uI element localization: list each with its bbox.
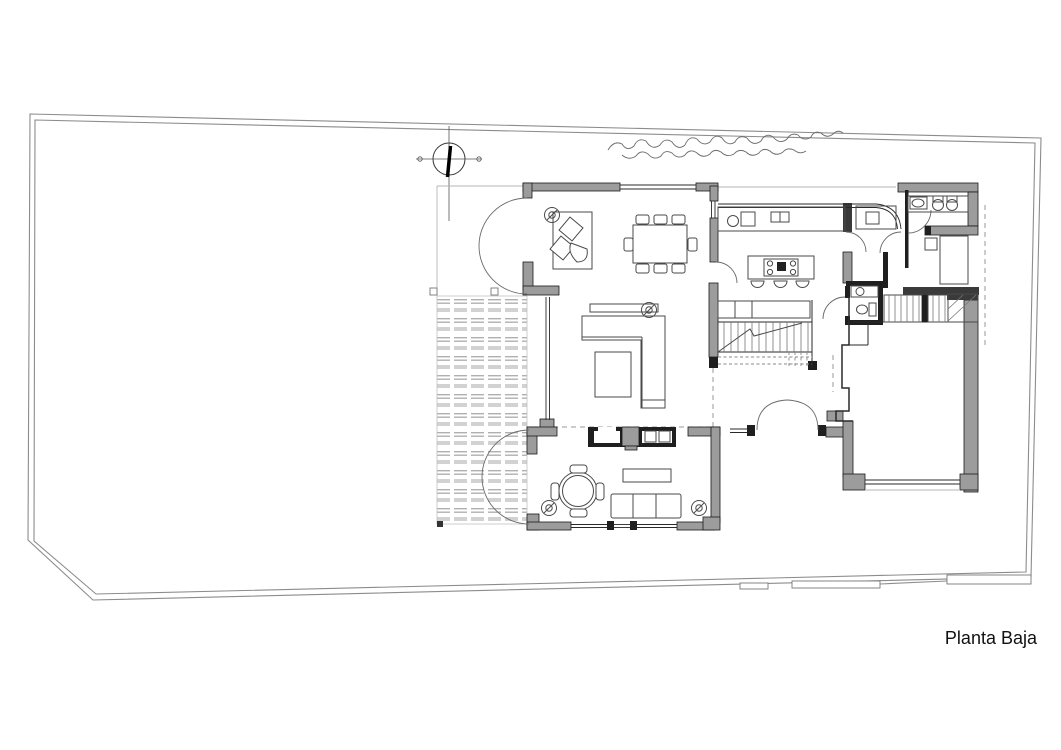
deck-striped-floor <box>437 296 527 524</box>
dining-table <box>633 225 687 263</box>
round-table <box>559 472 597 510</box>
floor-plan-drawing: Planta Baja <box>0 0 1061 750</box>
bar-stools <box>751 281 809 288</box>
floor-plan-page: Planta Baja <box>0 0 1061 750</box>
pergola-post <box>430 288 437 295</box>
pergola-post <box>437 521 443 527</box>
study-sofa <box>611 494 681 518</box>
pergola-post <box>491 288 498 295</box>
fireplace <box>588 427 676 450</box>
deck-terrace <box>430 288 527 527</box>
paper-background <box>0 0 1061 750</box>
kitchen-island <box>748 256 814 279</box>
plan-title: Planta Baja <box>945 628 1038 648</box>
